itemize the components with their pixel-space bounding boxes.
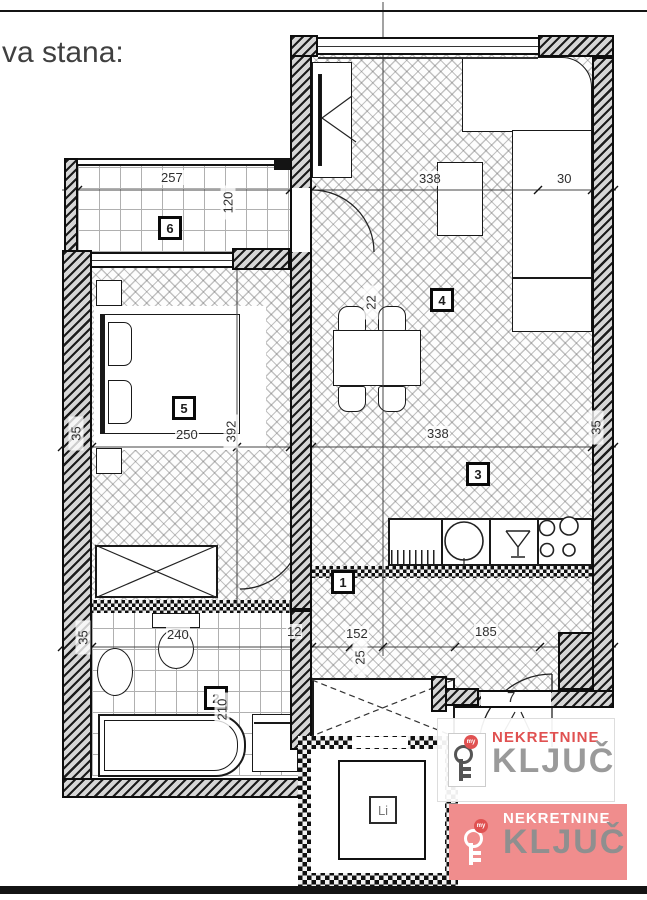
dim-bed-width: 250	[175, 427, 199, 442]
window-sill-line	[318, 57, 538, 59]
elevator-door-gap	[352, 737, 408, 748]
room-marker-terrace: 6	[158, 216, 182, 240]
wall-segment	[232, 248, 290, 270]
terrace-railing	[78, 164, 290, 166]
wall-segment	[538, 35, 614, 57]
entry-number-label: 7	[506, 690, 516, 705]
tv-antenna-lines	[322, 96, 356, 142]
wall-segment	[64, 158, 78, 252]
dim-wall-bottom-left: 35	[76, 621, 91, 655]
top-border-line	[0, 10, 647, 12]
dim-bath-width: 240	[166, 627, 190, 642]
key-badge: my	[474, 819, 488, 833]
key-icon: my	[459, 818, 495, 870]
room-marker-bedroom: 5	[172, 396, 196, 420]
wall-segment	[558, 632, 594, 690]
room-marker-hall: 1	[331, 570, 355, 594]
dim-terrace-width: 257	[160, 170, 184, 185]
bottom-border-line	[0, 886, 647, 894]
wall-segment	[62, 250, 92, 780]
dim-wall-right: 35	[589, 411, 604, 445]
wall-segment	[445, 688, 479, 706]
dim-sofa-depth: 30	[556, 171, 572, 186]
watermark-logo-red: my NEKRETNINE KLJUČ	[449, 804, 627, 880]
dim-living-width-2: 338	[426, 426, 450, 441]
dim-terrace-depth: 120	[221, 186, 236, 220]
wall-segment	[592, 57, 614, 708]
terrace-railing	[78, 158, 290, 160]
watermark-brand: KLJUČ	[503, 827, 626, 858]
dim-hall-seg-3: 25	[353, 641, 368, 675]
door-swing-arcs	[240, 190, 552, 747]
room-marker-kitchen: 3	[466, 462, 490, 486]
dim-hall-seg-1: 12	[286, 624, 302, 639]
watermark-brand: KLJUČ	[492, 746, 615, 777]
dim-hall-seg-2: 152	[345, 626, 369, 641]
floorplan-page: va stana:	[0, 0, 647, 900]
key-badge: my	[464, 735, 478, 749]
wall-segment	[290, 55, 312, 610]
watermark-logo-light: my NEKRETNINE KLJUČ	[437, 718, 615, 802]
dim-bed-depth: 392	[224, 415, 239, 449]
wall-segment	[62, 778, 320, 798]
dim-wall-left: 35	[69, 417, 84, 451]
wardrobe-cross	[95, 545, 218, 598]
key-icon: my	[448, 733, 486, 787]
dim-table-gap: 22	[364, 286, 379, 320]
lift-label: Li	[369, 796, 397, 824]
room-marker-dining: 4	[430, 288, 454, 312]
door-opening	[292, 188, 310, 252]
kitchen-symbols	[445, 517, 578, 566]
page-title: va stana:	[2, 36, 124, 70]
dim-living-width: 338	[418, 171, 442, 186]
window-living	[318, 37, 538, 55]
dim-bath-depth: 210	[215, 693, 230, 727]
dim-entry-width: 185	[474, 624, 498, 639]
dimension-lines	[62, 2, 616, 656]
window-bedroom	[92, 252, 232, 268]
wall-segment	[290, 35, 318, 57]
